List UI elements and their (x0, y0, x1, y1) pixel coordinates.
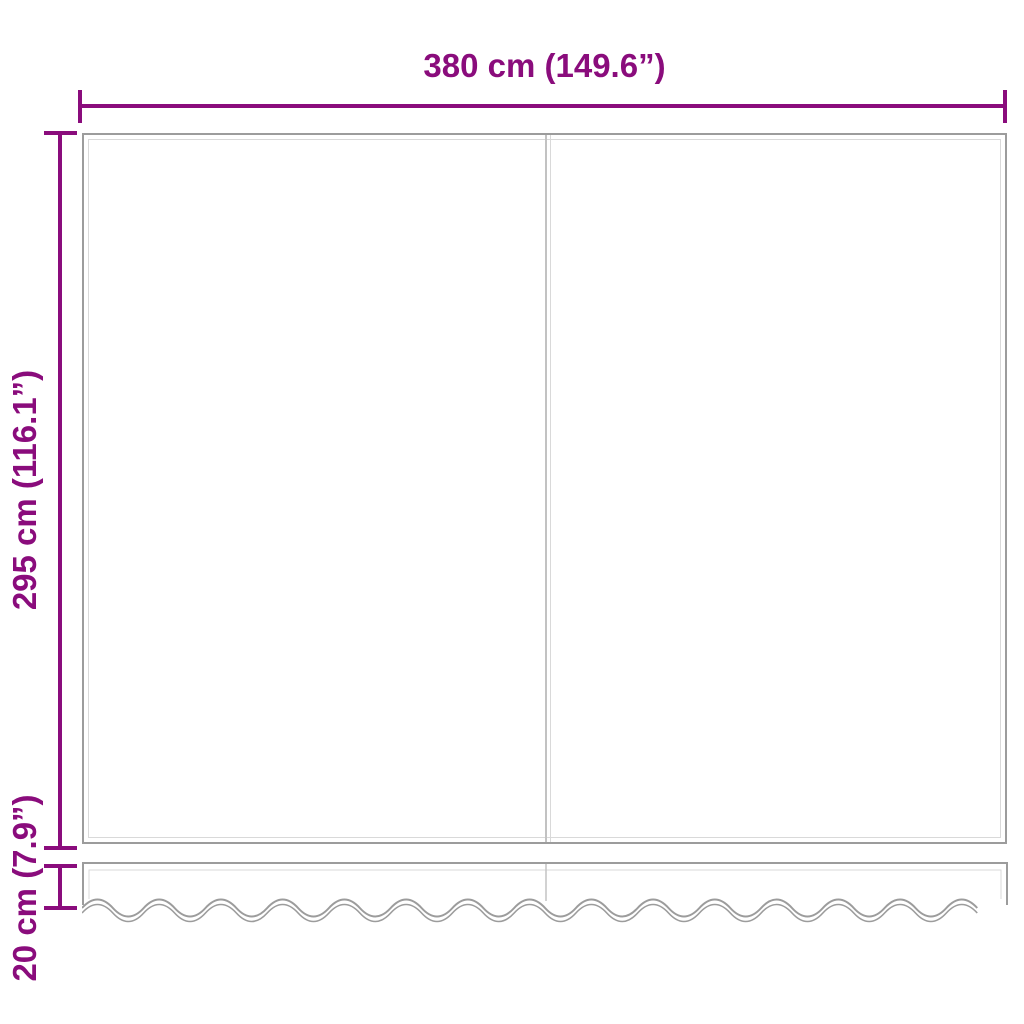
valance-wave-edge-outer (82, 900, 977, 917)
valance-dimension-line (58, 866, 62, 908)
valance-dimension-tick-top (44, 864, 77, 868)
awning-fabric-panel (82, 133, 1007, 844)
product-dimension-diagram: 380 cm (149.6”) 295 cm (116.1”) 20 cm (7… (0, 0, 1024, 1024)
valance-dimension-label: 20 cm (7.9”) (5, 738, 45, 1024)
fabric-center-seam (545, 135, 547, 842)
height-dimension-tick-top (44, 131, 77, 135)
height-dimension-line (58, 133, 62, 850)
valance-inner-seam (89, 870, 1001, 899)
width-dimension-tick-left (78, 90, 82, 123)
width-dimension-tick-right (1003, 90, 1007, 123)
width-dimension-line (80, 104, 1007, 108)
fabric-center-seam-hairline (550, 135, 551, 842)
valance-dimension-tick-bottom (44, 906, 77, 910)
height-dimension-label: 295 cm (116.1”) (5, 290, 45, 690)
valance-strip (82, 861, 1008, 925)
height-dimension-tick-bottom (44, 846, 77, 850)
valance-wave-edge-inner (82, 905, 977, 922)
width-dimension-label: 380 cm (149.6”) (82, 46, 1007, 86)
